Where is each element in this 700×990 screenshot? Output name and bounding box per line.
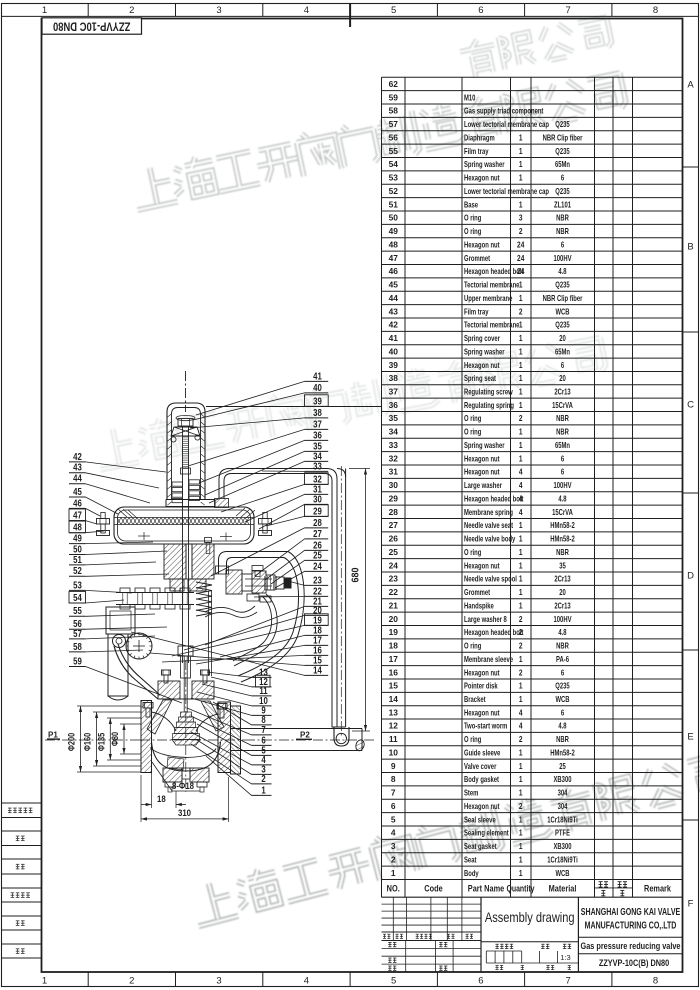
svg-text:15CrVA: 15CrVA (552, 400, 573, 410)
svg-text:Spring cover: Spring cover (464, 333, 500, 343)
svg-text:1: 1 (519, 587, 523, 597)
svg-text:Needle valve seat: Needle valve seat (464, 520, 514, 530)
svg-text:42: 42 (73, 451, 82, 462)
svg-text:Hexagon nut: Hexagon nut (464, 801, 500, 811)
svg-text:ZZYVP-10C(B) DN80: ZZYVP-10C(B) DN80 (599, 957, 670, 968)
svg-text:28: 28 (313, 517, 322, 528)
svg-text:57: 57 (73, 628, 82, 639)
svg-text:14: 14 (313, 664, 322, 675)
svg-text:Φ135: Φ135 (95, 733, 106, 752)
svg-text:39: 39 (313, 395, 322, 406)
svg-text:48: 48 (73, 522, 82, 533)
svg-text:Film tray: Film tray (464, 146, 489, 156)
svg-text:38: 38 (389, 373, 399, 383)
svg-text:18: 18 (157, 793, 166, 804)
svg-text:304: 304 (558, 801, 568, 811)
svg-text:Seat gasket: Seat gasket (464, 841, 497, 851)
svg-text:1: 1 (519, 788, 523, 798)
svg-text:2: 2 (261, 773, 265, 784)
svg-text:P1: P1 (48, 731, 58, 740)
svg-text:Seat: Seat (464, 854, 477, 864)
svg-text:29: 29 (313, 505, 322, 516)
svg-text:Membrane sleeve: Membrane sleeve (464, 654, 513, 664)
svg-text:15: 15 (389, 681, 399, 691)
svg-text:Body gasket: Body gasket (464, 774, 499, 784)
svg-text:41: 41 (313, 370, 322, 381)
svg-text:30: 30 (389, 480, 399, 490)
svg-text:Hexagon nut: Hexagon nut (464, 667, 500, 677)
svg-text:1: 1 (519, 400, 523, 410)
svg-text:7: 7 (566, 976, 571, 987)
svg-text:1: 1 (519, 373, 523, 383)
svg-text:2: 2 (519, 667, 523, 677)
svg-text:10: 10 (389, 747, 399, 757)
svg-text:20: 20 (559, 333, 566, 343)
svg-text:48: 48 (389, 239, 399, 249)
svg-text:8-Φ18: 8-Φ18 (172, 780, 194, 791)
svg-text:ZL101: ZL101 (554, 199, 571, 209)
svg-text:2: 2 (519, 734, 523, 744)
svg-text:24: 24 (313, 560, 322, 571)
svg-text:9: 9 (391, 761, 396, 771)
svg-text:NO.: NO. (387, 883, 400, 894)
svg-text:2: 2 (129, 5, 134, 16)
svg-text:41: 41 (389, 333, 399, 343)
svg-text:Membrane spring: Membrane spring (464, 507, 513, 517)
svg-text:680: 680 (350, 567, 362, 582)
svg-text:1: 1 (519, 534, 523, 544)
svg-text:58: 58 (73, 641, 82, 652)
svg-text:1: 1 (519, 748, 523, 758)
svg-text:35: 35 (559, 560, 566, 570)
svg-text:NBR Clip fiber: NBR Clip fiber (543, 132, 583, 142)
svg-text:1: 1 (519, 333, 523, 343)
svg-text:NBR: NBR (556, 226, 569, 236)
svg-text:Body: Body (464, 868, 479, 878)
svg-text:6: 6 (561, 453, 564, 463)
svg-text:4.8: 4.8 (558, 721, 566, 731)
svg-text:16: 16 (389, 667, 399, 677)
svg-text:52: 52 (73, 565, 82, 576)
svg-text:1: 1 (519, 761, 523, 771)
svg-text:20: 20 (559, 373, 566, 383)
svg-text:100HV: 100HV (554, 614, 572, 624)
svg-text:F: F (688, 899, 694, 910)
svg-text:33: 33 (313, 460, 322, 471)
svg-text:46: 46 (73, 497, 82, 508)
svg-text:B: B (687, 242, 693, 253)
svg-text:33: 33 (389, 440, 399, 450)
svg-text:1: 1 (519, 440, 523, 450)
svg-text:C: C (687, 400, 694, 411)
svg-text:Q235: Q235 (555, 320, 569, 330)
svg-text:25: 25 (559, 761, 566, 771)
svg-text:O ring: O ring (464, 547, 481, 557)
svg-text:54: 54 (389, 159, 399, 169)
svg-text:24: 24 (517, 240, 525, 250)
svg-text:HMn58-2: HMn58-2 (550, 533, 575, 543)
svg-text:13: 13 (389, 707, 399, 717)
svg-text:Hexagon nut: Hexagon nut (464, 172, 500, 182)
svg-text:Hexagon nut: Hexagon nut (464, 360, 500, 370)
svg-text:Film tray: Film tray (464, 306, 489, 316)
svg-text:Hexagon headed bolt: Hexagon headed bolt (464, 266, 524, 276)
svg-text:Q235: Q235 (555, 681, 569, 691)
svg-text:2: 2 (129, 976, 134, 987)
svg-text:Two-start worm: Two-start worm (464, 721, 507, 731)
svg-text:1: 1 (519, 774, 523, 784)
svg-text:NBR: NBR (556, 427, 569, 437)
svg-text:NBR Clip fiber: NBR Clip fiber (543, 293, 583, 303)
svg-text:6: 6 (478, 5, 483, 16)
svg-text:Hexagon nut: Hexagon nut (464, 453, 500, 463)
svg-text:7: 7 (566, 5, 571, 16)
svg-text:Hexagon nut: Hexagon nut (464, 239, 500, 249)
svg-text:PA-6: PA-6 (556, 654, 569, 664)
svg-text:30: 30 (313, 493, 322, 504)
svg-text:65Mn: 65Mn (555, 159, 570, 169)
svg-text:1: 1 (519, 454, 523, 464)
svg-text:Q235: Q235 (555, 146, 569, 156)
svg-text:40: 40 (313, 382, 322, 393)
svg-text:2: 2 (519, 413, 523, 423)
svg-text:Φ160: Φ160 (82, 733, 93, 752)
svg-text:59: 59 (73, 655, 82, 666)
svg-text:Seal sleeve: Seal sleeve (464, 814, 496, 824)
svg-text:45: 45 (389, 280, 399, 290)
svg-text:Large washer: Large washer (464, 480, 502, 490)
svg-text:6: 6 (561, 667, 564, 677)
svg-text:1: 1 (519, 574, 523, 584)
svg-text:2: 2 (519, 614, 523, 624)
svg-text:52: 52 (389, 186, 399, 196)
svg-text:Remark: Remark (644, 883, 671, 894)
svg-text:37: 37 (313, 418, 322, 429)
svg-text:8: 8 (653, 976, 658, 987)
svg-text:O ring: O ring (464, 213, 481, 223)
svg-text:O ring: O ring (464, 640, 481, 650)
svg-text:2: 2 (519, 627, 523, 637)
svg-text:Grommet: Grommet (464, 253, 491, 263)
svg-text:Hexagon nut: Hexagon nut (464, 707, 500, 717)
svg-text:Spring seat: Spring seat (464, 373, 496, 383)
svg-text:1: 1 (261, 784, 265, 795)
svg-text:Part Name: Part Name (468, 883, 505, 894)
svg-text:44: 44 (73, 473, 82, 484)
svg-text:24: 24 (517, 266, 525, 276)
svg-text:Tectorial membrane: Tectorial membrane (464, 320, 519, 330)
svg-text:Φ200: Φ200 (66, 733, 77, 752)
svg-text:1:3: 1:3 (560, 953, 570, 962)
svg-text:34: 34 (389, 427, 399, 437)
svg-text:6: 6 (561, 707, 564, 717)
svg-text:Bracket: Bracket (464, 694, 486, 704)
svg-text:1: 1 (519, 320, 523, 330)
svg-text:53: 53 (73, 579, 82, 590)
svg-text:2: 2 (519, 306, 523, 316)
svg-text:1: 1 (519, 347, 523, 357)
svg-text:Sealing element: Sealing element (464, 828, 509, 838)
svg-text:55: 55 (73, 605, 82, 616)
svg-text:4.8: 4.8 (558, 627, 566, 637)
svg-text:56: 56 (389, 132, 399, 142)
svg-text:4.8: 4.8 (558, 493, 566, 503)
svg-text:6: 6 (561, 172, 564, 182)
svg-text:3: 3 (216, 976, 221, 987)
svg-text:1Cr18Ni9Ti: 1Cr18Ni9Ti (547, 814, 578, 824)
svg-text:Large washer 8: Large washer 8 (464, 614, 507, 624)
svg-text:HMn58-2: HMn58-2 (550, 747, 575, 757)
svg-text:58: 58 (389, 106, 399, 116)
svg-text:2Cr13: 2Cr13 (554, 600, 570, 610)
svg-text:1: 1 (519, 159, 523, 169)
svg-text:14: 14 (389, 694, 399, 704)
svg-text:Assembly drawing: Assembly drawing (485, 910, 575, 925)
svg-text:MANUFACTURING CO,.LTD: MANUFACTURING CO,.LTD (585, 919, 677, 930)
svg-text:Gas supply triad component: Gas supply triad component (464, 106, 544, 116)
svg-text:XB300: XB300 (554, 774, 572, 784)
svg-text:28: 28 (389, 507, 399, 517)
svg-text:304: 304 (558, 787, 568, 797)
svg-text:1: 1 (519, 360, 523, 370)
svg-text:49: 49 (73, 533, 82, 544)
svg-text:Diaphragm: Diaphragm (464, 132, 495, 142)
svg-text:Tectorial membrane: Tectorial membrane (464, 279, 519, 289)
svg-text:PTFE: PTFE (555, 828, 570, 838)
svg-text:NBR: NBR (556, 213, 569, 223)
svg-text:XB300: XB300 (554, 841, 572, 851)
svg-text:NBR: NBR (556, 734, 569, 744)
svg-text:1: 1 (519, 815, 523, 825)
svg-text:43: 43 (389, 306, 399, 316)
svg-text:WCB: WCB (555, 868, 569, 878)
svg-text:1: 1 (519, 200, 523, 210)
svg-text:5: 5 (391, 976, 396, 987)
svg-text:3: 3 (216, 5, 221, 16)
svg-text:6: 6 (561, 239, 564, 249)
svg-text:49: 49 (389, 226, 399, 236)
svg-text:1: 1 (42, 976, 47, 987)
svg-text:3: 3 (519, 213, 523, 223)
svg-text:Hexagon headed bolt: Hexagon headed bolt (464, 627, 524, 637)
svg-text:1: 1 (519, 601, 523, 611)
svg-text:17: 17 (389, 654, 399, 664)
svg-text:Guide sleeve: Guide sleeve (464, 747, 500, 757)
svg-text:20: 20 (389, 614, 399, 624)
svg-text:1: 1 (42, 5, 47, 16)
svg-text:6: 6 (561, 467, 564, 477)
svg-text:46: 46 (389, 266, 399, 276)
svg-text:26: 26 (389, 534, 399, 544)
svg-text:Needle valve body: Needle valve body (464, 533, 515, 543)
svg-text:1: 1 (519, 280, 523, 290)
svg-text:29: 29 (389, 493, 399, 503)
svg-text:47: 47 (73, 510, 82, 521)
svg-text:4.8: 4.8 (558, 266, 566, 276)
svg-text:1: 1 (519, 133, 523, 143)
svg-text:40: 40 (389, 346, 399, 356)
svg-text:4: 4 (304, 976, 309, 987)
svg-text:A: A (687, 80, 694, 91)
svg-text:31: 31 (389, 467, 399, 477)
svg-text:54: 54 (73, 592, 82, 603)
svg-text:25: 25 (389, 547, 399, 557)
svg-text:1: 1 (519, 828, 523, 838)
svg-text:2: 2 (519, 641, 523, 651)
svg-text:100HV: 100HV (554, 480, 572, 490)
svg-text:5: 5 (391, 5, 396, 16)
svg-text:42: 42 (389, 320, 399, 330)
svg-text:55: 55 (389, 146, 399, 156)
svg-text:32: 32 (389, 453, 399, 463)
svg-text:37: 37 (389, 387, 399, 397)
svg-text:1: 1 (519, 547, 523, 557)
svg-text:1: 1 (519, 841, 523, 851)
svg-text:27: 27 (313, 528, 322, 539)
svg-text:1: 1 (519, 520, 523, 530)
svg-text:Lower tectorial membrane cap: Lower tectorial membrane cap (464, 119, 549, 129)
svg-text:44: 44 (389, 293, 399, 303)
svg-text:D: D (687, 571, 694, 582)
svg-text:38: 38 (313, 407, 322, 418)
svg-text:Handspike: Handspike (464, 600, 494, 610)
svg-text:Quantity: Quantity (507, 884, 535, 894)
svg-text:24: 24 (517, 253, 525, 263)
svg-text:21: 21 (389, 600, 399, 610)
svg-text:4: 4 (304, 5, 309, 16)
svg-text:O ring: O ring (464, 413, 481, 423)
svg-text:Needle valve spool: Needle valve spool (464, 574, 517, 584)
svg-text:ZZYVP-10C DN80: ZZYVP-10C DN80 (53, 19, 131, 32)
svg-text:1: 1 (519, 681, 523, 691)
svg-text:39: 39 (389, 360, 399, 370)
svg-text:50: 50 (389, 213, 399, 223)
svg-text:62: 62 (389, 79, 399, 89)
svg-text:Code: Code (424, 883, 443, 894)
svg-text:HMn58-2: HMn58-2 (550, 520, 575, 530)
svg-text:11: 11 (389, 734, 398, 744)
svg-text:Gas pressure reducing valve: Gas pressure reducing valve (581, 940, 681, 951)
svg-text:1: 1 (519, 173, 523, 183)
svg-text:Base: Base (464, 199, 478, 209)
svg-text:M10: M10 (464, 92, 475, 102)
svg-text:Valve cover: Valve cover (464, 761, 497, 771)
svg-text:P2: P2 (300, 731, 310, 740)
svg-text:1: 1 (519, 427, 523, 437)
svg-text:Spring washer: Spring washer (464, 440, 505, 450)
svg-text:15CrVA: 15CrVA (552, 507, 573, 517)
svg-text:O ring: O ring (464, 734, 481, 744)
svg-text:35: 35 (389, 413, 399, 423)
svg-text:6: 6 (561, 360, 564, 370)
svg-text:Material: Material (549, 883, 577, 894)
svg-text:57: 57 (389, 119, 399, 129)
svg-text:36: 36 (389, 400, 399, 410)
svg-text:Stem: Stem (464, 787, 478, 797)
svg-text:Grommet: Grommet (464, 587, 491, 597)
svg-text:1: 1 (391, 868, 396, 878)
svg-text:310: 310 (178, 807, 191, 818)
svg-text:Pointer disk: Pointer disk (464, 681, 498, 691)
svg-text:1: 1 (519, 694, 523, 704)
svg-text:43: 43 (73, 462, 82, 473)
svg-text:19: 19 (389, 627, 399, 637)
svg-text:O ring: O ring (464, 427, 481, 437)
svg-text:1Cr18Ni9Ti: 1Cr18Ni9Ti (547, 854, 578, 864)
svg-text:3: 3 (391, 841, 396, 851)
svg-text:SHANGHAI GONG KAI VALVE: SHANGHAI GONG KAI VALVE (581, 906, 681, 917)
svg-text:Hexagon headed bolt: Hexagon headed bolt (464, 493, 524, 503)
svg-text:24: 24 (389, 560, 399, 570)
svg-text:Lower tectorial membrane cap: Lower tectorial membrane cap (464, 186, 549, 196)
svg-text:Hexagon nut: Hexagon nut (464, 467, 500, 477)
svg-text:22: 22 (389, 587, 399, 597)
svg-text:36: 36 (313, 429, 322, 440)
svg-text:Upper membrane: Upper membrane (464, 293, 512, 303)
svg-text:2: 2 (519, 226, 523, 236)
svg-text:6: 6 (478, 976, 483, 987)
svg-text:NBR: NBR (556, 640, 569, 650)
svg-text:2: 2 (391, 854, 396, 864)
svg-text:1: 1 (519, 146, 523, 156)
svg-text:2: 2 (519, 801, 523, 811)
svg-text:Spring washer: Spring washer (464, 346, 505, 356)
svg-text:6: 6 (391, 801, 396, 811)
svg-text:65Mn: 65Mn (555, 440, 570, 450)
svg-text:20: 20 (559, 587, 566, 597)
svg-text:2Cr13: 2Cr13 (554, 386, 570, 396)
svg-text:NBR: NBR (556, 413, 569, 423)
svg-text:NBR: NBR (556, 547, 569, 557)
svg-text:59: 59 (389, 92, 399, 102)
svg-text:1: 1 (519, 654, 523, 664)
svg-text:51: 51 (389, 199, 399, 209)
svg-text:51: 51 (73, 554, 82, 565)
svg-text:Regulating screw: Regulating screw (464, 386, 513, 396)
svg-text:65Mn: 65Mn (555, 346, 570, 356)
svg-text:Q235: Q235 (555, 279, 569, 289)
svg-text:Regulating spring: Regulating spring (464, 400, 514, 410)
svg-text:8: 8 (653, 5, 658, 16)
svg-text:Φ80: Φ80 (109, 732, 120, 747)
svg-text:27: 27 (389, 520, 399, 530)
svg-text:WCB: WCB (555, 306, 569, 316)
svg-text:23: 23 (389, 574, 399, 584)
svg-text:5: 5 (391, 814, 396, 824)
svg-text:Q235: Q235 (555, 186, 569, 196)
svg-text:1: 1 (519, 387, 523, 397)
svg-text:WCB: WCB (555, 694, 569, 704)
svg-text:O ring: O ring (464, 226, 481, 236)
svg-text:1: 1 (519, 560, 523, 570)
svg-text:100HV: 100HV (554, 253, 572, 263)
svg-text:25: 25 (313, 549, 322, 560)
svg-text:53: 53 (389, 173, 399, 183)
svg-text:23: 23 (313, 574, 322, 585)
svg-text:Hexagon nut: Hexagon nut (464, 560, 500, 570)
svg-text:8: 8 (391, 774, 396, 784)
svg-text:Spring washer: Spring washer (464, 159, 505, 169)
svg-text:Q235: Q235 (555, 119, 569, 129)
svg-text:1: 1 (519, 293, 523, 303)
svg-text:12: 12 (389, 721, 399, 731)
svg-text:7: 7 (261, 724, 265, 735)
svg-text:4: 4 (391, 828, 396, 838)
svg-text:E: E (687, 732, 693, 743)
svg-text:7: 7 (391, 788, 396, 798)
svg-text:45: 45 (73, 486, 82, 497)
svg-text:1: 1 (519, 855, 523, 865)
